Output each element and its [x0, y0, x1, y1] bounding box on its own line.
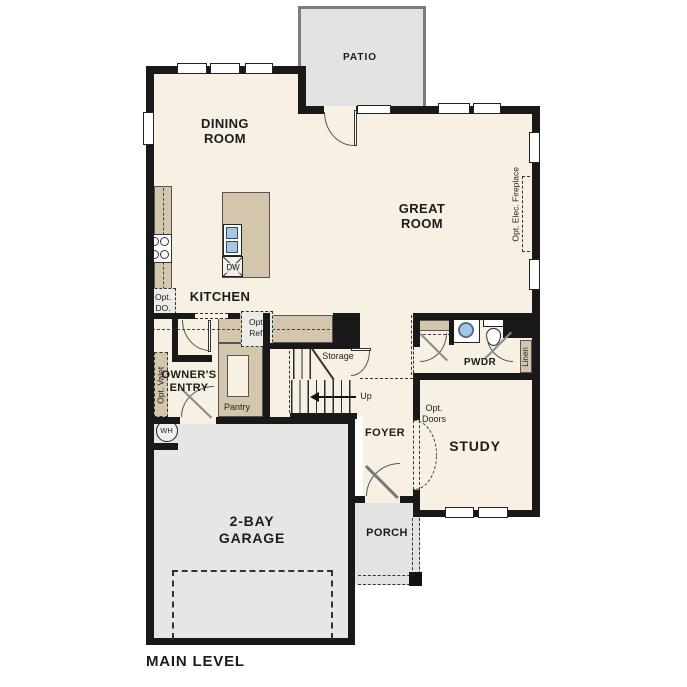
- wall-garage-east: [348, 417, 355, 645]
- room-label-great: GREAT ROOM: [372, 201, 472, 232]
- wall-left: [146, 66, 154, 645]
- owners-closet-door-leaf: [208, 320, 211, 352]
- floor-plan: Opt. DO. Opt. Ref. Opt. Valet Opt. Elec.…: [0, 0, 687, 687]
- wall-right: [532, 106, 540, 517]
- water-heater-label: WH: [157, 426, 176, 435]
- wall-powder-divider: [449, 315, 454, 345]
- burner-icon: [160, 237, 169, 246]
- burner-icon: [160, 250, 169, 259]
- stairs-open-dash: [289, 346, 290, 413]
- sink-basin: [226, 241, 238, 253]
- room-label-pantry: Pantry: [207, 402, 267, 413]
- wall-garage-north-a: [146, 417, 180, 424]
- wall-garage-south: [146, 638, 355, 645]
- opt-doors-label: Opt. Doors: [410, 403, 458, 426]
- powder-hall-opening: [413, 347, 420, 373]
- pantry-shelf-inset: [227, 355, 249, 397]
- window: [210, 63, 240, 74]
- room-label-study: STUDY: [435, 438, 515, 455]
- porch-post: [409, 572, 422, 586]
- powder-sink: [452, 318, 480, 343]
- opt-double-oven-label: Opt. DO.: [152, 292, 174, 313]
- room-label-owners-entry: OWNER'S ENTRY: [149, 369, 229, 395]
- wall-closet-south: [172, 355, 212, 362]
- stairs-up-label: Up: [356, 391, 376, 402]
- up-arrow-line: [318, 396, 356, 398]
- wall-patio-connector: [298, 66, 306, 110]
- wall-powder-west: [413, 313, 420, 347]
- wall-kitchen-south-b: [228, 313, 240, 319]
- room-label-linen: Linen: [521, 332, 531, 382]
- wall-stairs-south: [290, 413, 357, 419]
- window: [143, 112, 154, 145]
- coat-closet-shelf: [417, 320, 452, 331]
- greatroom-hall-dash: [411, 315, 412, 375]
- garage-door-dash: [172, 570, 333, 639]
- dishwasher-label: DW: [223, 263, 243, 273]
- wall-kitchen-south-a: [154, 313, 195, 319]
- window: [245, 63, 273, 74]
- window: [478, 507, 508, 518]
- island-sink: [223, 224, 242, 256]
- room-label-dining: DINING ROOM: [175, 116, 275, 147]
- wall-study-south: [413, 510, 540, 517]
- dishwasher: DW: [222, 256, 243, 277]
- room-label-patio: PATIO: [320, 52, 400, 64]
- room-label-foyer: FOYER: [355, 427, 415, 440]
- room-label-kitchen: KITCHEN: [180, 289, 260, 304]
- room-label-storage: Storage: [308, 351, 368, 362]
- window: [529, 132, 540, 163]
- up-arrow-head: [310, 392, 319, 402]
- room-label-garage: 2-BAY GARAGE: [202, 513, 302, 546]
- window: [473, 103, 501, 114]
- sink-bowl: [458, 322, 474, 338]
- wall-wh-nook: [146, 443, 178, 450]
- patio-door-leaf: [354, 110, 357, 146]
- window: [438, 103, 470, 114]
- kitchen-passage-opening: [195, 313, 228, 319]
- window: [357, 105, 391, 114]
- room-label-porch: PORCH: [357, 527, 417, 540]
- window: [177, 63, 207, 74]
- foyer-hall-dash: [360, 378, 413, 379]
- wall-stair-block: [333, 313, 360, 345]
- room-label-powder: PWDR: [450, 357, 510, 369]
- window: [445, 507, 474, 518]
- window: [529, 259, 540, 290]
- sink-basin: [226, 227, 238, 239]
- opt-fireplace-label: Opt. Elec. Fireplace: [511, 144, 522, 264]
- plan-title: MAIN LEVEL: [146, 653, 306, 671]
